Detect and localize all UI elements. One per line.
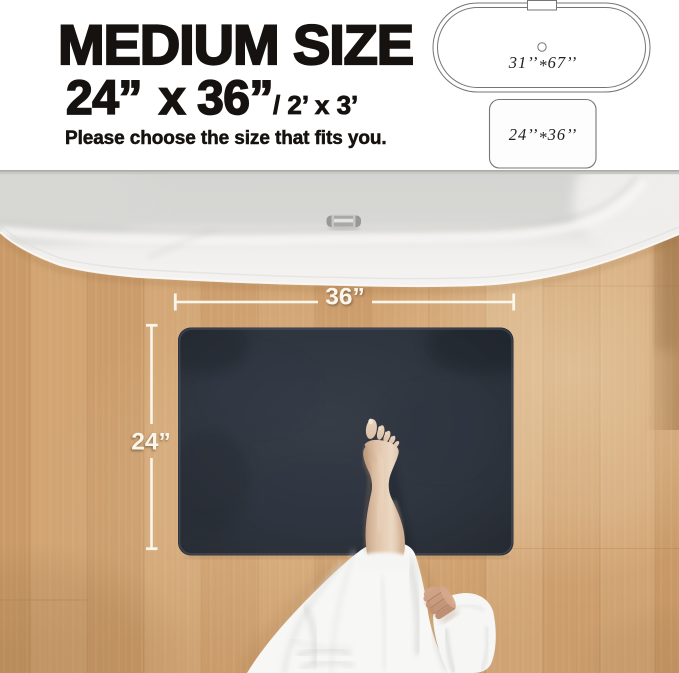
svg-text:24’’*36’’: 24’’*36’’ [509,125,578,147]
svg-text:31’’*67’’: 31’’*67’’ [508,53,578,75]
svg-text:24”: 24” [131,429,171,456]
svg-text:36”: 36” [325,284,365,311]
